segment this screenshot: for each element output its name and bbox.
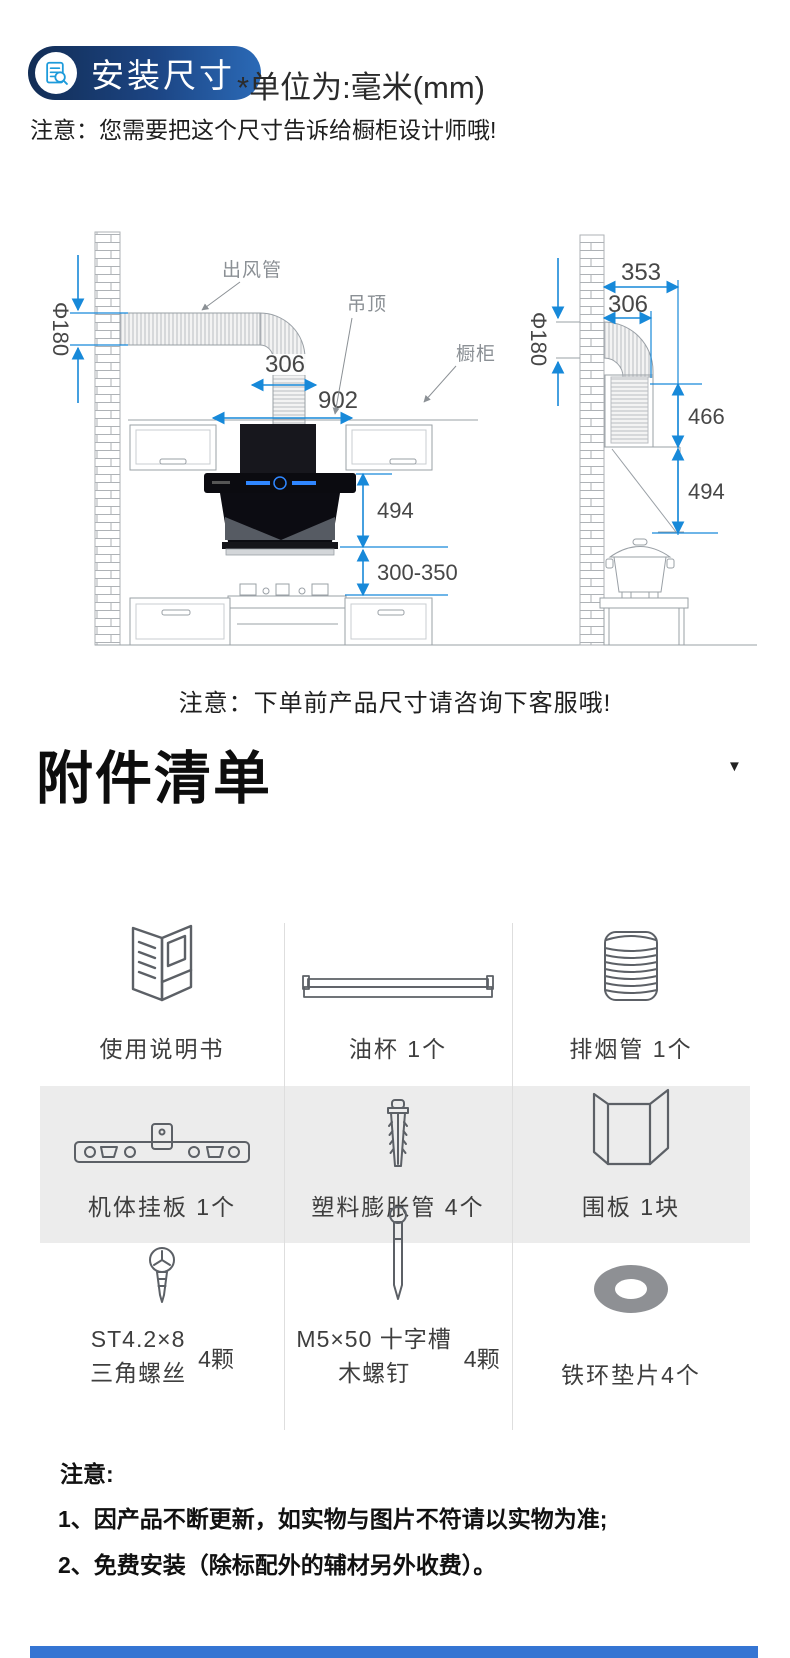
accessory-item-washer: 铁环垫片4个	[512, 1242, 750, 1432]
accessory-label: 机体挂板 1个	[88, 1188, 236, 1222]
document-magnifier-icon	[35, 52, 77, 94]
dim-front-stove-distance: 300-350	[377, 560, 458, 585]
accessory-qty: 4颗	[464, 1340, 500, 1374]
accessory-label: ST4.2×8 三角螺丝	[90, 1323, 186, 1390]
exhaust-pipe-icon	[512, 848, 750, 1030]
dim-side-chimney-height: 466	[688, 404, 725, 429]
callout-ceiling: 吊顶	[347, 294, 387, 315]
accessory-item-surround-board: 围板 1块	[512, 1086, 750, 1242]
footer-note: 2、免费安装（除标配外的辅材另外收费）。	[58, 1546, 496, 1580]
accessory-label: 油杯 1个	[349, 1030, 447, 1064]
footer-notes-title: 注意:	[60, 1455, 114, 1489]
accessory-item-wood-screws: M5×50 十字槽 木螺钉 4颗	[284, 1242, 512, 1432]
cabinet-designer-notice: 注意：您需要把这个尺寸告诉给橱柜设计师哦!	[30, 111, 496, 145]
section-badge: 安装尺寸	[28, 46, 261, 100]
footer-note: 1、因产品不断更新，如实物与图片不符请以实物为准;	[58, 1500, 607, 1534]
badge-label: 安装尺寸	[91, 49, 235, 97]
callout-cabinet: 橱柜	[456, 343, 496, 365]
oil-cup-icon	[284, 848, 512, 1030]
dim-front-hood-height: 494	[377, 498, 414, 523]
accessory-qty: 4颗	[198, 1340, 234, 1374]
wood-screw-icon	[284, 1205, 512, 1323]
accessory-item-triangle-screws: ST4.2×8 三角螺丝 4颗	[40, 1242, 284, 1432]
wall-anchor-icon	[284, 1086, 512, 1188]
accessories-title: 附件清单	[36, 733, 272, 815]
accessory-item-exhaust-pipe: 排烟管 1个	[512, 848, 750, 1086]
accessory-label: 使用说明书	[100, 1030, 225, 1064]
product-install-page: 安装尺寸 *单位为:毫米(mm) 注意：您需要把这个尺寸告诉给橱柜设计师哦!	[0, 0, 790, 1658]
accessory-label: 排烟管 1个	[569, 1030, 692, 1064]
dim-front-duct-diameter: Φ180	[48, 302, 73, 356]
collapse-caret-icon[interactable]: ▼	[727, 758, 742, 775]
installation-diagram: 306 902 Φ180 494 300-350 出风管 吊顶 橱柜	[0, 218, 790, 660]
dim-side-total-depth: 353	[621, 259, 661, 286]
hanging-plate-icon	[40, 1086, 284, 1188]
dim-front-duct-width: 306	[265, 351, 305, 378]
accessory-label: 围板 1块	[582, 1188, 680, 1222]
washer-icon	[512, 1242, 750, 1356]
pre-order-notice: 注意：下单前产品尺寸请咨询下客服哦!	[0, 683, 790, 718]
unit-note: *单位为:毫米(mm)	[237, 62, 485, 107]
accessory-item-manual: 使用说明书	[40, 848, 284, 1086]
dim-side-hood-height: 494	[688, 479, 725, 504]
dim-front-hood-width: 902	[318, 387, 358, 414]
accessory-item-hanging-plate: 机体挂板 1个	[40, 1086, 284, 1242]
dim-side-duct-depth: 306	[608, 291, 648, 318]
accessories-grid: 使用说明书 油杯 1个 排烟管 1个	[40, 848, 750, 1432]
callout-outlet-pipe: 出风管	[222, 259, 282, 281]
accessory-item-oil-cup: 油杯 1个	[284, 848, 512, 1086]
manual-icon	[40, 848, 284, 1030]
section-divider-bar	[30, 1646, 758, 1658]
triangle-screw-icon	[40, 1242, 284, 1323]
dim-side-duct-diameter: Φ180	[526, 312, 551, 366]
accessory-label: 铁环垫片4个	[561, 1356, 701, 1390]
surround-board-icon	[512, 1086, 750, 1188]
accessory-label: M5×50 十字槽 木螺钉	[296, 1323, 451, 1390]
